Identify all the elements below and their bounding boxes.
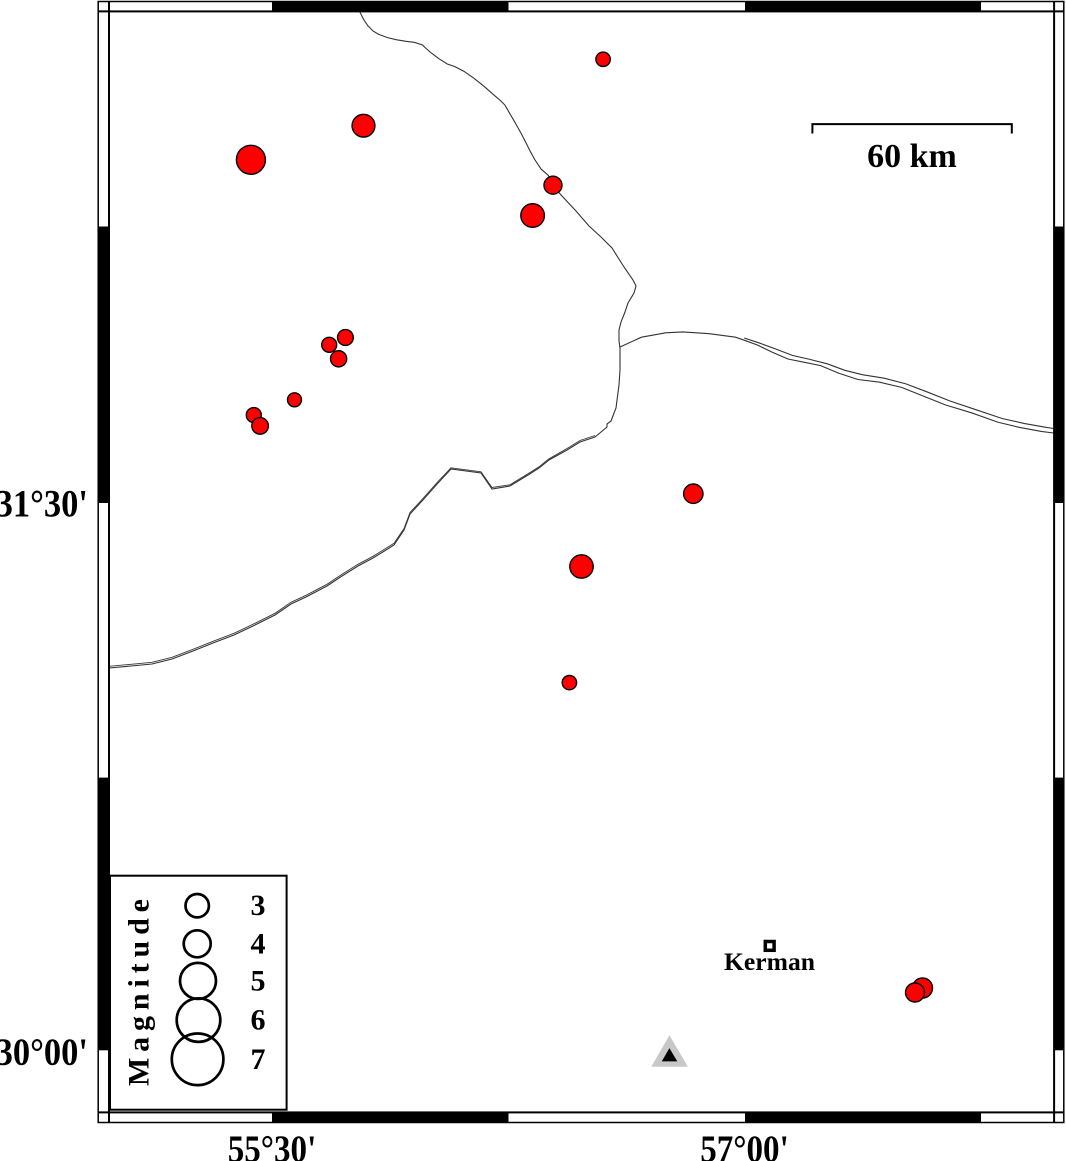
svg-text:5: 5 bbox=[251, 964, 266, 997]
svg-text:31°30': 31°30' bbox=[0, 482, 88, 525]
svg-text:6: 6 bbox=[251, 1004, 266, 1037]
svg-text:3: 3 bbox=[251, 889, 266, 922]
svg-text:Kerman: Kerman bbox=[724, 949, 815, 976]
svg-text:60 km: 60 km bbox=[867, 138, 957, 175]
svg-text:4: 4 bbox=[251, 927, 266, 960]
svg-text:30°00': 30°00' bbox=[0, 1030, 88, 1073]
svg-text:57°00': 57°00' bbox=[700, 1127, 789, 1161]
svg-text:55°30': 55°30' bbox=[228, 1127, 317, 1161]
svg-text:7: 7 bbox=[251, 1043, 266, 1076]
